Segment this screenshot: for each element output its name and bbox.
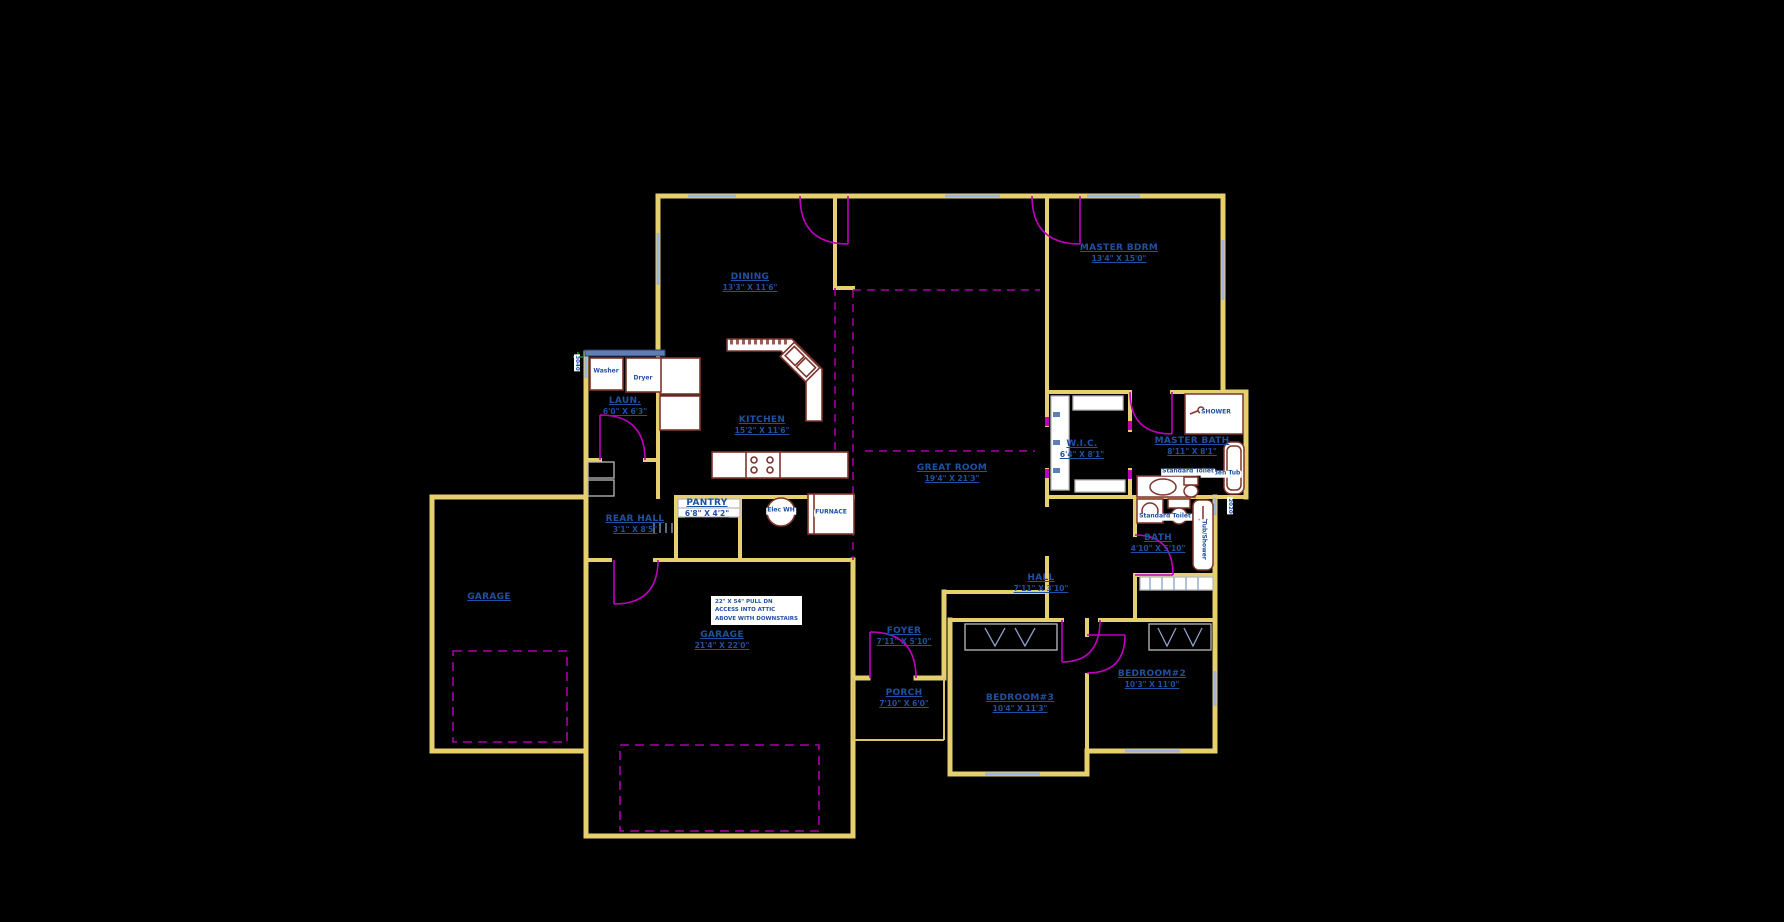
- bedroom2-door: [1087, 635, 1125, 673]
- fixture-label-washer: Washer: [592, 369, 619, 376]
- fixture-label-toilet-bath: Standard Toilet: [1138, 514, 1192, 521]
- room-label-pantry: PANTRY 6'8" X 4'2": [685, 498, 729, 519]
- doors: [600, 196, 1173, 678]
- range: [746, 452, 780, 478]
- garage-entry-door: [614, 560, 658, 604]
- room-label-bath: BATH 4'10" X 5'10": [1131, 533, 1186, 554]
- room-label-hall: HALL 7'11" X 3'10": [1014, 573, 1069, 594]
- fixture-label-shower: SHOWER: [1200, 410, 1232, 417]
- counter-blue: [585, 350, 665, 356]
- room-label-garage-single: GARAGE: [467, 592, 511, 603]
- room-label-foyer: FOYER 7'11" X 5'10": [877, 626, 932, 647]
- linen-shelf: [1140, 577, 1213, 590]
- master-patio-door: [1032, 196, 1080, 244]
- closet-shelving: [588, 396, 1213, 650]
- garage-door-dashed: [453, 651, 819, 831]
- master-toilet-bowl: [1184, 485, 1198, 497]
- master-toilet-tank: [1184, 477, 1198, 485]
- attic-access-note: 22" X 54" PULL DN ACCESS INTO ATTIC ABOV…: [711, 596, 802, 625]
- fixture-label-furnace: FURNACE: [814, 510, 848, 517]
- refrigerator: [660, 358, 700, 394]
- dining-patio-door: [800, 196, 848, 244]
- wic-shelf-top: [1073, 396, 1123, 410]
- bedroom3-door: [1062, 620, 1100, 662]
- room-label-master-bath: MASTER BATH 8'11" X 8'1": [1155, 436, 1230, 457]
- room-label-rear-hall: REAR HALL 3'1" X 8'5": [606, 514, 665, 535]
- room-label-wic: W.I.C. 6'4" X 8'1": [1060, 439, 1104, 460]
- room-label-bedroom3: BEDROOM#3 10'4" X 11'3": [986, 693, 1054, 714]
- bath2-toilet-tank: [1168, 499, 1190, 508]
- wic-shelf-bottom: [1075, 480, 1125, 492]
- fixture-label-dryer: Dryer: [633, 376, 654, 383]
- room-label-porch: PORCH 7'10" X 6'0": [879, 688, 929, 709]
- fixture-label-elec-wh: Elec WH: [766, 508, 796, 515]
- master-sink: [1150, 479, 1176, 495]
- room-label-laundry: LAUN. 6'0" X 6'3": [603, 396, 647, 417]
- room-label-master-bdrm: MASTER BDRM 13'4" X 15'0": [1080, 243, 1158, 264]
- hall-closet-upper: [588, 462, 614, 478]
- ceiling-break-dashed: [835, 288, 1040, 560]
- cad-floorplan-viewport[interactable]: DINING 13'3" X 11'6" MASTER BDRM 13'4" X…: [0, 0, 1784, 922]
- room-label-bedroom2: BEDROOM#2 10'3" X 11'0": [1118, 669, 1186, 690]
- bed3-closet: [965, 624, 1057, 650]
- fixture-label-tub-shower: Tub/Shower: [1200, 519, 1207, 560]
- kitchen-cabinets: [660, 339, 848, 478]
- room-label-dining: DINING 13'3" X 11'6": [723, 272, 778, 293]
- wall-oven: [660, 396, 700, 430]
- room-label-garage-main: GARAGE 21'4" X 22'0": [695, 630, 750, 651]
- window-tag-laundry: 3040: [574, 354, 580, 371]
- room-label-great-room: GREAT ROOM 19'4" X 21'3": [917, 463, 987, 484]
- floorplan-drawing: [0, 0, 1784, 922]
- room-label-kitchen: KITCHEN 15'2" X 11'6": [735, 415, 790, 436]
- fixture-label-toilet-master: Standard Toilet: [1161, 469, 1215, 476]
- hall-closet-lower: [588, 480, 614, 496]
- laundry-door: [600, 415, 645, 460]
- window-tag-bath: 2020: [1227, 497, 1233, 514]
- master-bath-door: [1130, 392, 1172, 434]
